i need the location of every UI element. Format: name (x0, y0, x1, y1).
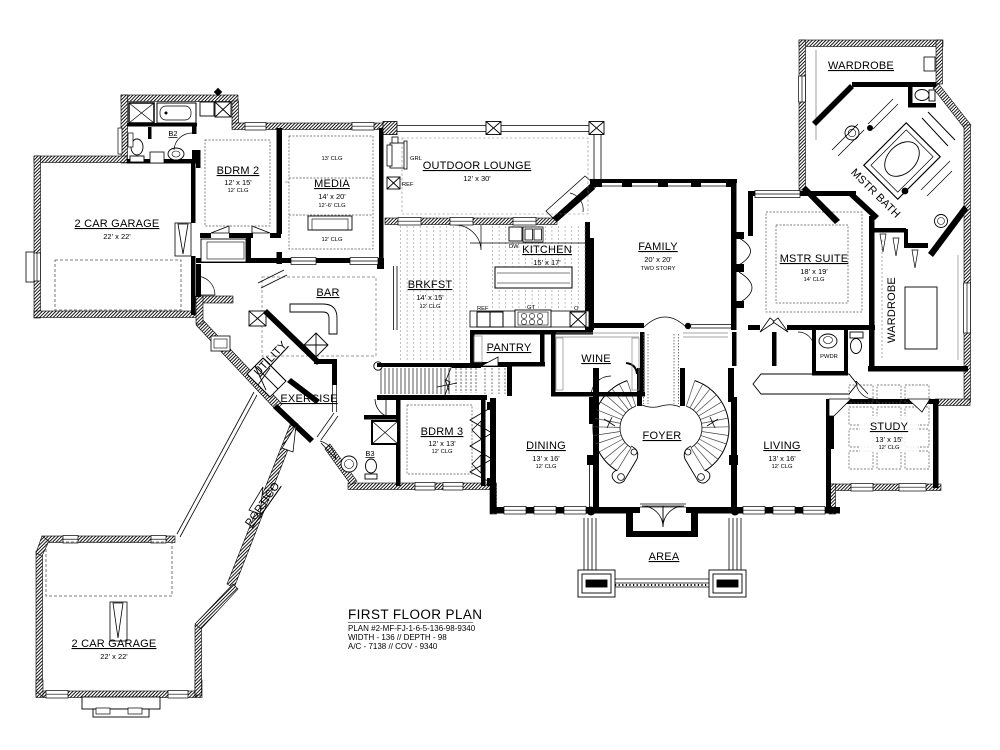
svg-text:WARDROBE: WARDROBE (886, 277, 898, 343)
svg-text:2 CAR GARAGE: 2 CAR GARAGE (75, 218, 160, 230)
svg-text:MEDIA: MEDIA (314, 178, 350, 190)
svg-text:14' CLG: 14' CLG (803, 277, 825, 283)
svg-text:LIVING: LIVING (763, 440, 800, 452)
svg-text:15' x 17': 15' x 17' (533, 258, 561, 267)
svg-text:12' CLG: 12' CLG (227, 188, 249, 194)
svg-text:14' x 20': 14' x 20' (318, 192, 346, 201)
svg-text:12' CLG: 12' CLG (419, 304, 441, 310)
svg-text:FIRST FLOOR PLAN: FIRST FLOOR PLAN (348, 607, 482, 622)
svg-text:DW: DW (509, 244, 519, 250)
svg-text:FOYER: FOYER (643, 430, 682, 442)
svg-text:12' x 13': 12' x 13' (428, 439, 456, 448)
svg-text:BAR: BAR (316, 287, 339, 299)
svg-text:12' x 30': 12' x 30' (463, 174, 491, 183)
svg-text:12' CLG: 12' CLG (771, 464, 793, 470)
svg-text:14' x 15': 14' x 15' (416, 293, 444, 302)
svg-text:22' x 22': 22' x 22' (103, 232, 131, 241)
svg-text:KITCHEN: KITCHEN (522, 244, 572, 256)
svg-text:AREA: AREA (649, 551, 680, 563)
svg-text:PWDR: PWDR (820, 354, 838, 360)
svg-text:WIDTH - 136 // DEPTH - 98: WIDTH - 136 // DEPTH - 98 (348, 633, 447, 642)
svg-text:13' x 15': 13' x 15' (875, 435, 903, 444)
svg-text:BRKFST: BRKFST (408, 279, 453, 291)
svg-text:STUDY: STUDY (870, 421, 909, 433)
svg-text:12' CLG: 12' CLG (431, 449, 453, 455)
svg-text:13' x 16': 13' x 16' (532, 454, 560, 463)
svg-text:O: O (574, 306, 579, 312)
svg-text:18' x 19': 18' x 19' (800, 267, 828, 276)
svg-text:OUTDOOR LOUNGE: OUTDOOR LOUNGE (423, 160, 532, 172)
svg-text:22' x 22': 22' x 22' (100, 652, 128, 661)
svg-text:B2: B2 (168, 129, 177, 138)
svg-text:EXERCISE: EXERCISE (280, 393, 337, 405)
svg-text:BDRM 3: BDRM 3 (421, 426, 464, 438)
svg-text:BDRM 2: BDRM 2 (217, 165, 260, 177)
svg-text:13' CLG: 13' CLG (321, 156, 343, 162)
svg-text:12' CLG: 12' CLG (535, 464, 557, 470)
svg-text:MSTR SUITE: MSTR SUITE (780, 253, 849, 265)
svg-text:GT: GT (527, 305, 536, 311)
svg-text:12' CLG: 12' CLG (321, 237, 343, 243)
svg-text:PANTRY: PANTRY (487, 342, 532, 354)
svg-text:WINE: WINE (581, 353, 611, 365)
svg-text:B3: B3 (365, 449, 374, 458)
svg-text:13' x 16': 13' x 16' (768, 454, 796, 463)
svg-text:12'-6' CLG: 12'-6' CLG (318, 203, 346, 209)
svg-text:20' x 20': 20' x 20' (644, 255, 672, 264)
svg-text:TWO STORY: TWO STORY (641, 266, 676, 272)
svg-text:REF: REF (402, 182, 414, 188)
svg-text:GRL: GRL (410, 156, 423, 162)
svg-text:12' x 15': 12' x 15' (224, 178, 252, 187)
svg-text:12' CLG: 12' CLG (878, 445, 900, 451)
svg-text:2 CAR GARAGE: 2 CAR GARAGE (72, 638, 157, 650)
svg-text:REF: REF (477, 306, 489, 312)
svg-text:A/C - 7138 // COV - 9340: A/C - 7138 // COV - 9340 (348, 642, 438, 651)
svg-text:PLAN #2-MF-FJ-1-6-5-136-98-934: PLAN #2-MF-FJ-1-6-5-136-98-9340 (348, 624, 476, 633)
svg-text:FAMILY: FAMILY (638, 241, 678, 253)
svg-text:WARDROBE: WARDROBE (828, 60, 894, 72)
svg-text:DINING: DINING (526, 440, 566, 452)
